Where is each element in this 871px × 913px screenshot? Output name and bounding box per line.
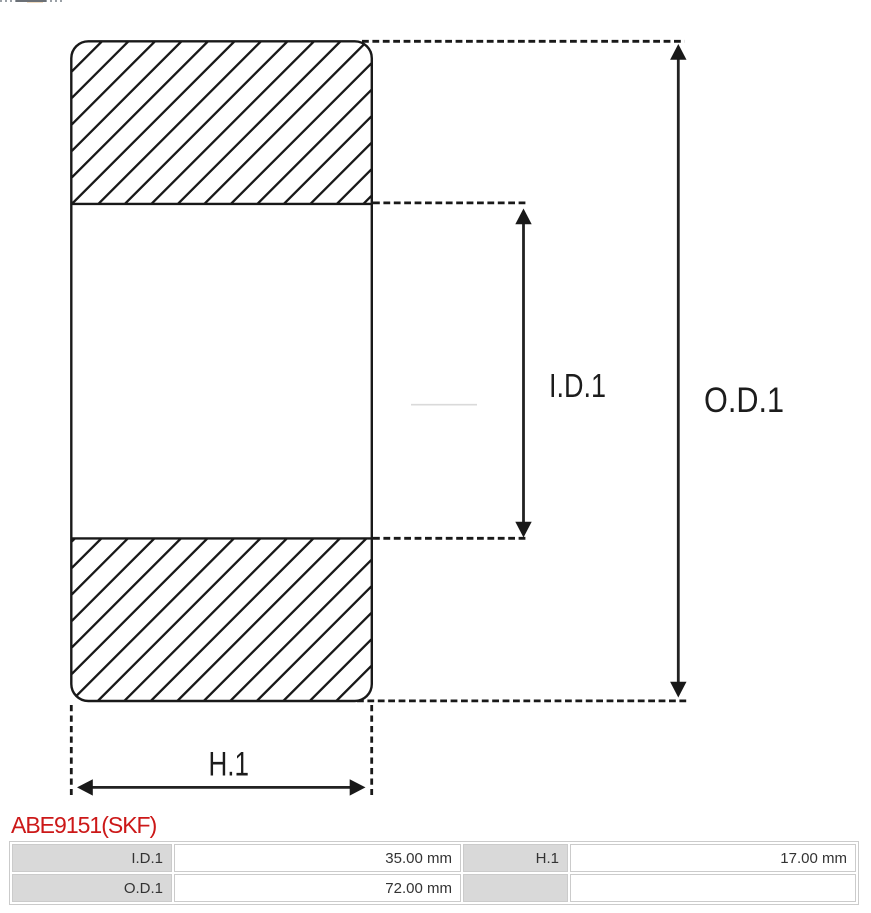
svg-text:O.D.1: O.D.1 <box>704 381 784 420</box>
svg-text:I.D.1: I.D.1 <box>549 367 606 404</box>
svg-text:H.1: H.1 <box>209 746 250 784</box>
